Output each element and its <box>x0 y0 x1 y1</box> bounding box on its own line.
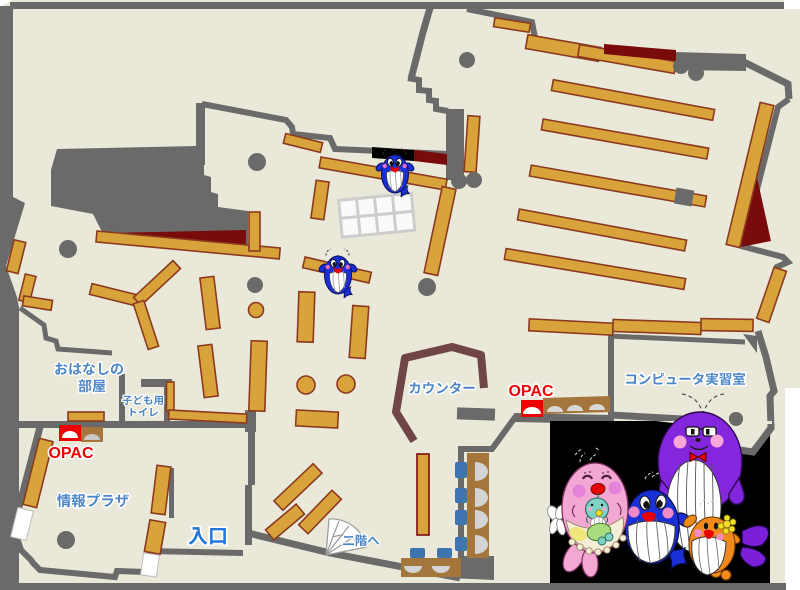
svg-text:OPAC: OPAC <box>48 445 93 462</box>
svg-text:OPAC: OPAC <box>508 383 553 400</box>
